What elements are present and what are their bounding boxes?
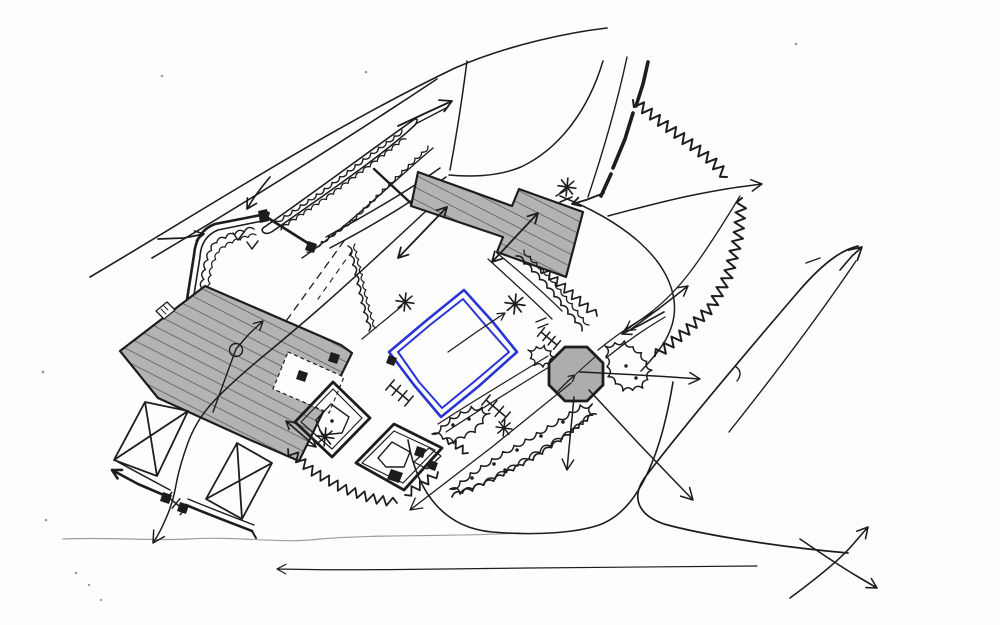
paper-background <box>0 0 1000 625</box>
bed-dot <box>330 419 334 423</box>
sketch-canvas <box>0 0 1000 625</box>
sketch-page <box>0 0 1000 625</box>
